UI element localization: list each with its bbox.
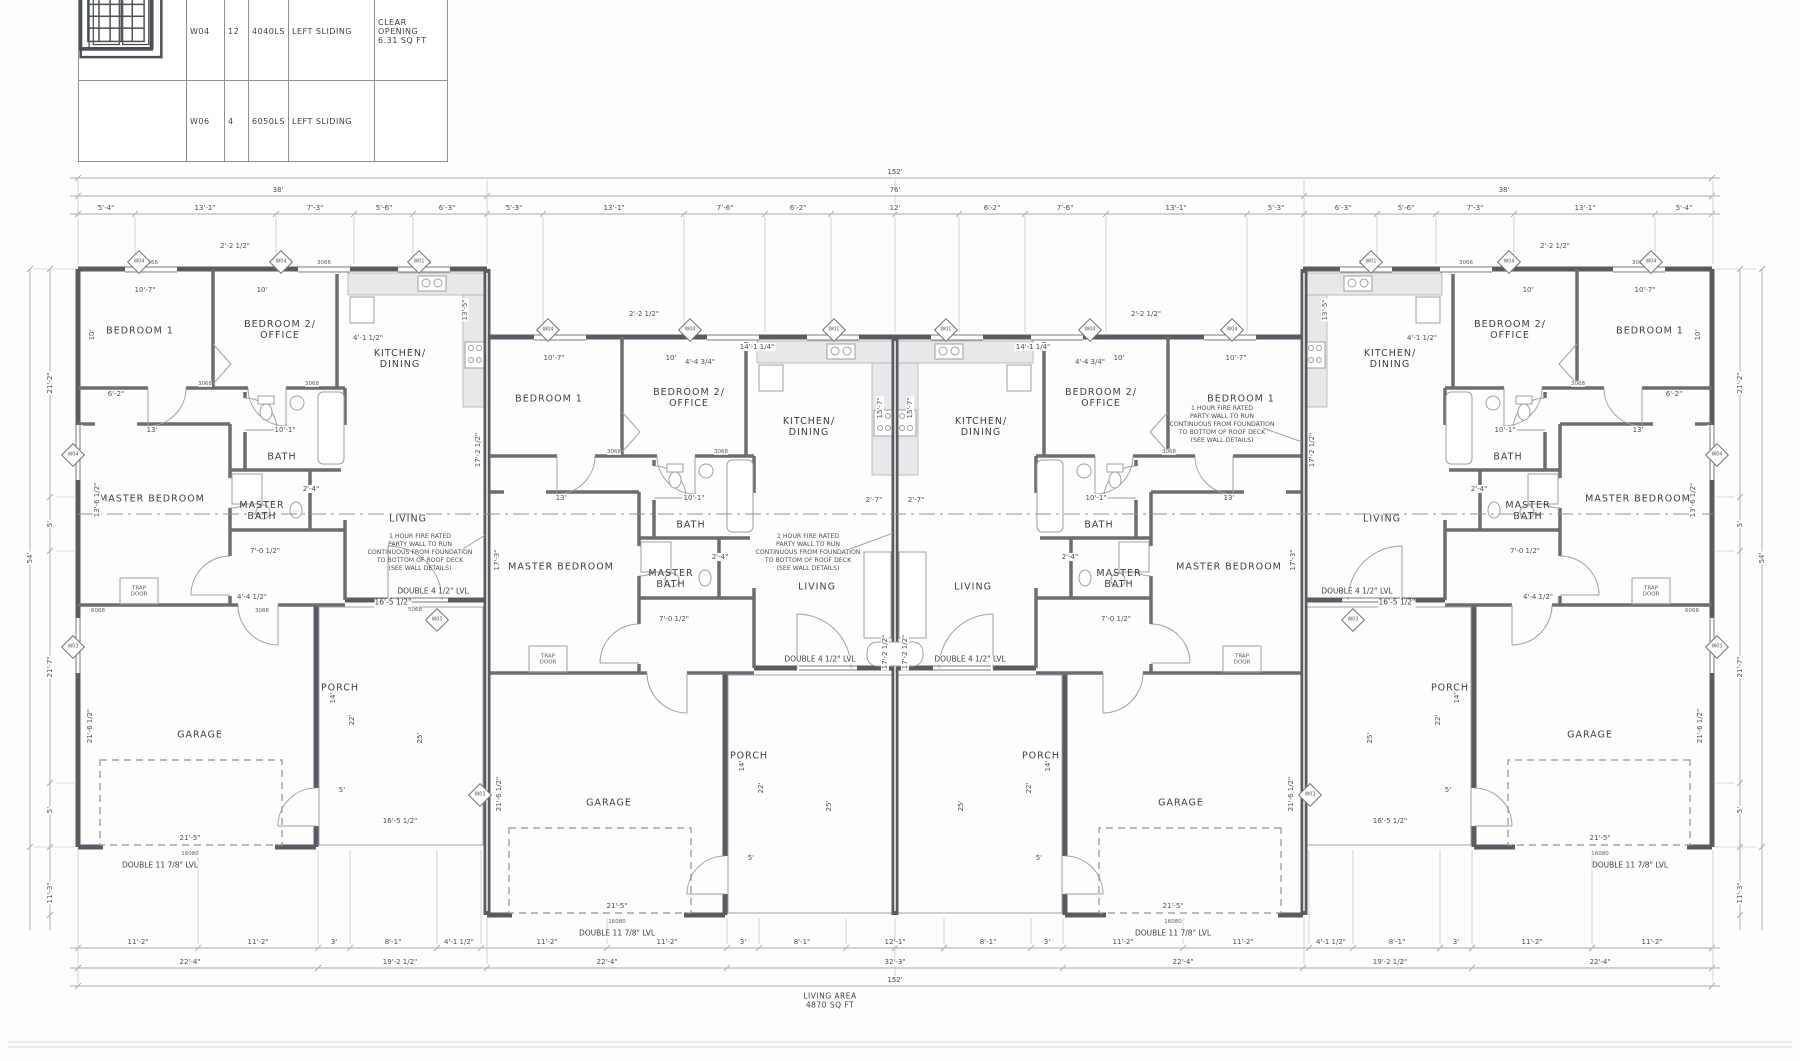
schedule-cell-notes: CLEAR OPENING 6.31 SQ FT (375, 0, 447, 81)
schedule-cell-qty: 12 (225, 0, 249, 81)
schedule-cell-id: W04 (187, 0, 225, 81)
schedule-cell-type: LEFT SLIDING (289, 0, 375, 81)
schedule-cell-size: 4040LS (249, 0, 289, 81)
schedule-cell-size: 6050LS (249, 81, 289, 161)
schedule-cell-notes (375, 81, 447, 161)
floor-plan-sheet: W04 12 4040LS LEFT SLIDING CLEAR OPENING… (0, 0, 1800, 1061)
schedule-cell-glyph (79, 81, 187, 161)
grid-window-icon (79, 0, 153, 51)
window-schedule-table: W04 12 4040LS LEFT SLIDING CLEAR OPENING… (78, 0, 448, 162)
schedule-row: W06 4 6050LS LEFT SLIDING (79, 81, 447, 161)
schedule-cell-id: W06 (187, 81, 225, 161)
schedule-cell-type: LEFT SLIDING (289, 81, 375, 161)
schedule-cell-qty: 4 (225, 81, 249, 161)
